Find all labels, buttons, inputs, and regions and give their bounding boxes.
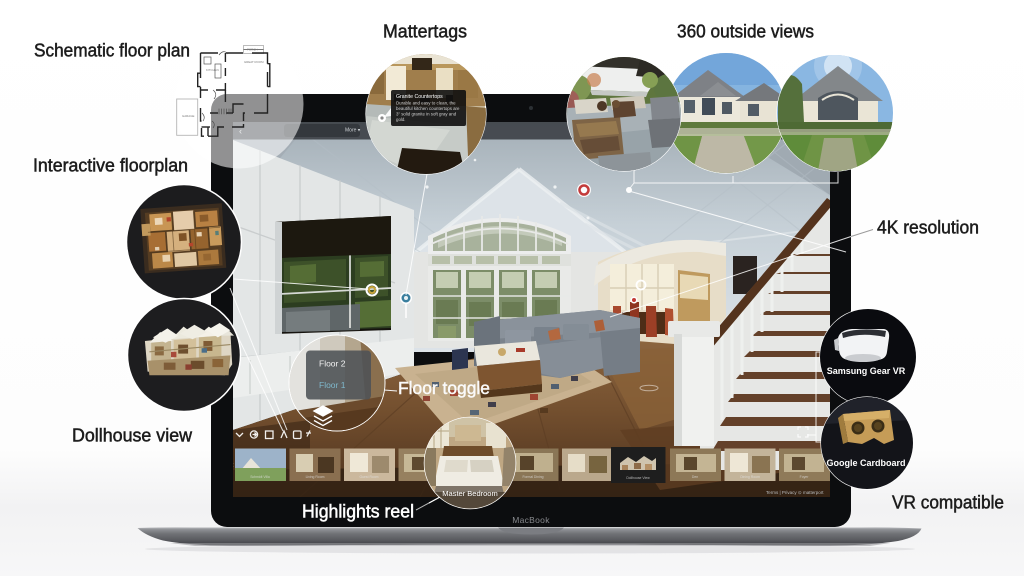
svg-text:KITCHEN: KITCHEN — [206, 68, 219, 72]
svg-text:Google Cardboard: Google Cardboard — [826, 458, 905, 468]
svg-text:gold.: gold. — [396, 117, 406, 122]
svg-text:Living Room: Living Room — [306, 475, 325, 479]
svg-text:Floor toggle: Floor toggle — [398, 378, 490, 398]
svg-text:GARAGE: GARAGE — [182, 114, 194, 118]
svg-text:Schematic floor plan: Schematic floor plan — [34, 41, 190, 61]
svg-text:Dollhouse view: Dollhouse view — [72, 426, 193, 446]
svg-text:Interactive floorplan: Interactive floorplan — [33, 156, 188, 176]
svg-text:Den: Den — [692, 475, 698, 479]
svg-text:beautiful kitchen countertops: beautiful kitchen countertops are — [396, 106, 460, 111]
svg-text:Terms | Privacy ⊙ matterpo: Terms | Privacy ⊙ matterport — [766, 490, 824, 495]
svg-text:Master Bedroom: Master Bedroom — [442, 489, 497, 498]
svg-text:Granite Countertops: Granite Countertops — [396, 94, 443, 100]
svg-text:Dining Room: Dining Room — [740, 475, 760, 479]
svg-text:MacBook: MacBook — [512, 515, 550, 525]
svg-text:3" solid granite in soft gray: 3" solid granite in soft gray and — [396, 112, 457, 117]
svg-text:Samsung Gear VR: Samsung Gear VR — [827, 366, 906, 376]
svg-text:GREAT ROOM: GREAT ROOM — [244, 60, 264, 64]
svg-text:Schmidt Villa: Schmidt Villa — [250, 475, 270, 479]
svg-text:Floor 2: Floor 2 — [319, 359, 346, 369]
svg-text:Guest Room: Guest Room — [359, 475, 378, 479]
svg-text:360 outside views: 360 outside views — [677, 22, 814, 42]
svg-text:VR compatible: VR compatible — [892, 493, 1004, 513]
svg-text:Highlights reel: Highlights reel — [302, 502, 414, 522]
svg-text:Durable and easy to clean, the: Durable and easy to clean, the — [396, 101, 456, 106]
svg-text:More ▾: More ▾ — [345, 128, 361, 134]
svg-text:4K resolution: 4K resolution — [877, 218, 979, 238]
svg-text:Dollhouse View: Dollhouse View — [626, 476, 650, 480]
svg-text:Foyer: Foyer — [800, 475, 810, 479]
svg-text:Formal Dining: Formal Dining — [522, 475, 543, 479]
svg-text:Floor 1: Floor 1 — [319, 380, 346, 390]
svg-text:Mattertags: Mattertags — [383, 22, 467, 42]
svg-text:PORCH: PORCH — [247, 48, 257, 52]
